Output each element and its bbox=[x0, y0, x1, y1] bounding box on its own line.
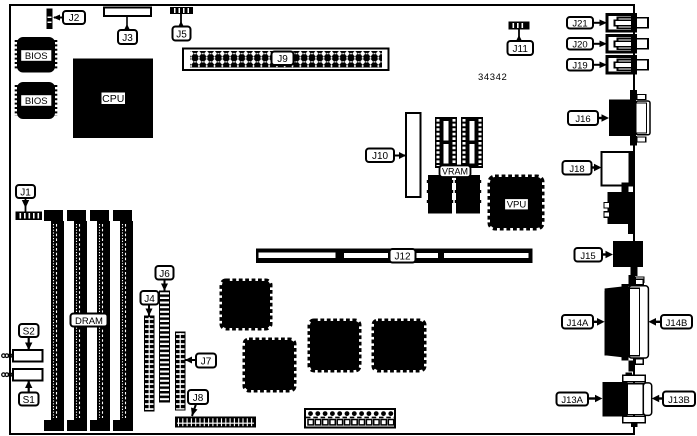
svg-text:J9: J9 bbox=[277, 54, 288, 65]
svg-text:S2: S2 bbox=[23, 327, 36, 338]
svg-text:J4: J4 bbox=[144, 294, 155, 305]
svg-text:J13A: J13A bbox=[561, 395, 583, 406]
svg-text:S1: S1 bbox=[23, 395, 36, 406]
svg-text:J8: J8 bbox=[193, 393, 204, 404]
svg-text:J14B: J14B bbox=[666, 318, 688, 329]
svg-text:J13B: J13B bbox=[668, 395, 690, 406]
svg-text:J5: J5 bbox=[176, 30, 187, 41]
svg-text:J11: J11 bbox=[513, 44, 529, 55]
svg-text:DRAM: DRAM bbox=[75, 316, 103, 327]
svg-text:34342: 34342 bbox=[478, 72, 507, 83]
svg-text:CPU: CPU bbox=[102, 93, 124, 105]
svg-text:J6: J6 bbox=[159, 269, 170, 280]
svg-text:J2: J2 bbox=[69, 13, 80, 24]
svg-text:J18: J18 bbox=[569, 164, 584, 175]
svg-text:J21: J21 bbox=[572, 18, 587, 29]
svg-text:J12: J12 bbox=[394, 252, 411, 263]
svg-text:J14A: J14A bbox=[567, 318, 589, 329]
svg-text:VRAM: VRAM bbox=[442, 167, 468, 177]
svg-text:J19: J19 bbox=[572, 60, 587, 71]
svg-text:J20: J20 bbox=[572, 39, 587, 50]
svg-text:BIOS: BIOS bbox=[25, 51, 48, 62]
svg-text:J7: J7 bbox=[201, 357, 212, 368]
svg-text:J10: J10 bbox=[372, 151, 389, 162]
svg-text:VPU: VPU bbox=[507, 200, 527, 211]
svg-text:BIOS: BIOS bbox=[25, 96, 48, 107]
svg-text:J16: J16 bbox=[575, 114, 590, 125]
svg-text:J15: J15 bbox=[580, 251, 595, 262]
svg-text:J3: J3 bbox=[122, 33, 133, 44]
svg-text:J1: J1 bbox=[20, 188, 31, 199]
